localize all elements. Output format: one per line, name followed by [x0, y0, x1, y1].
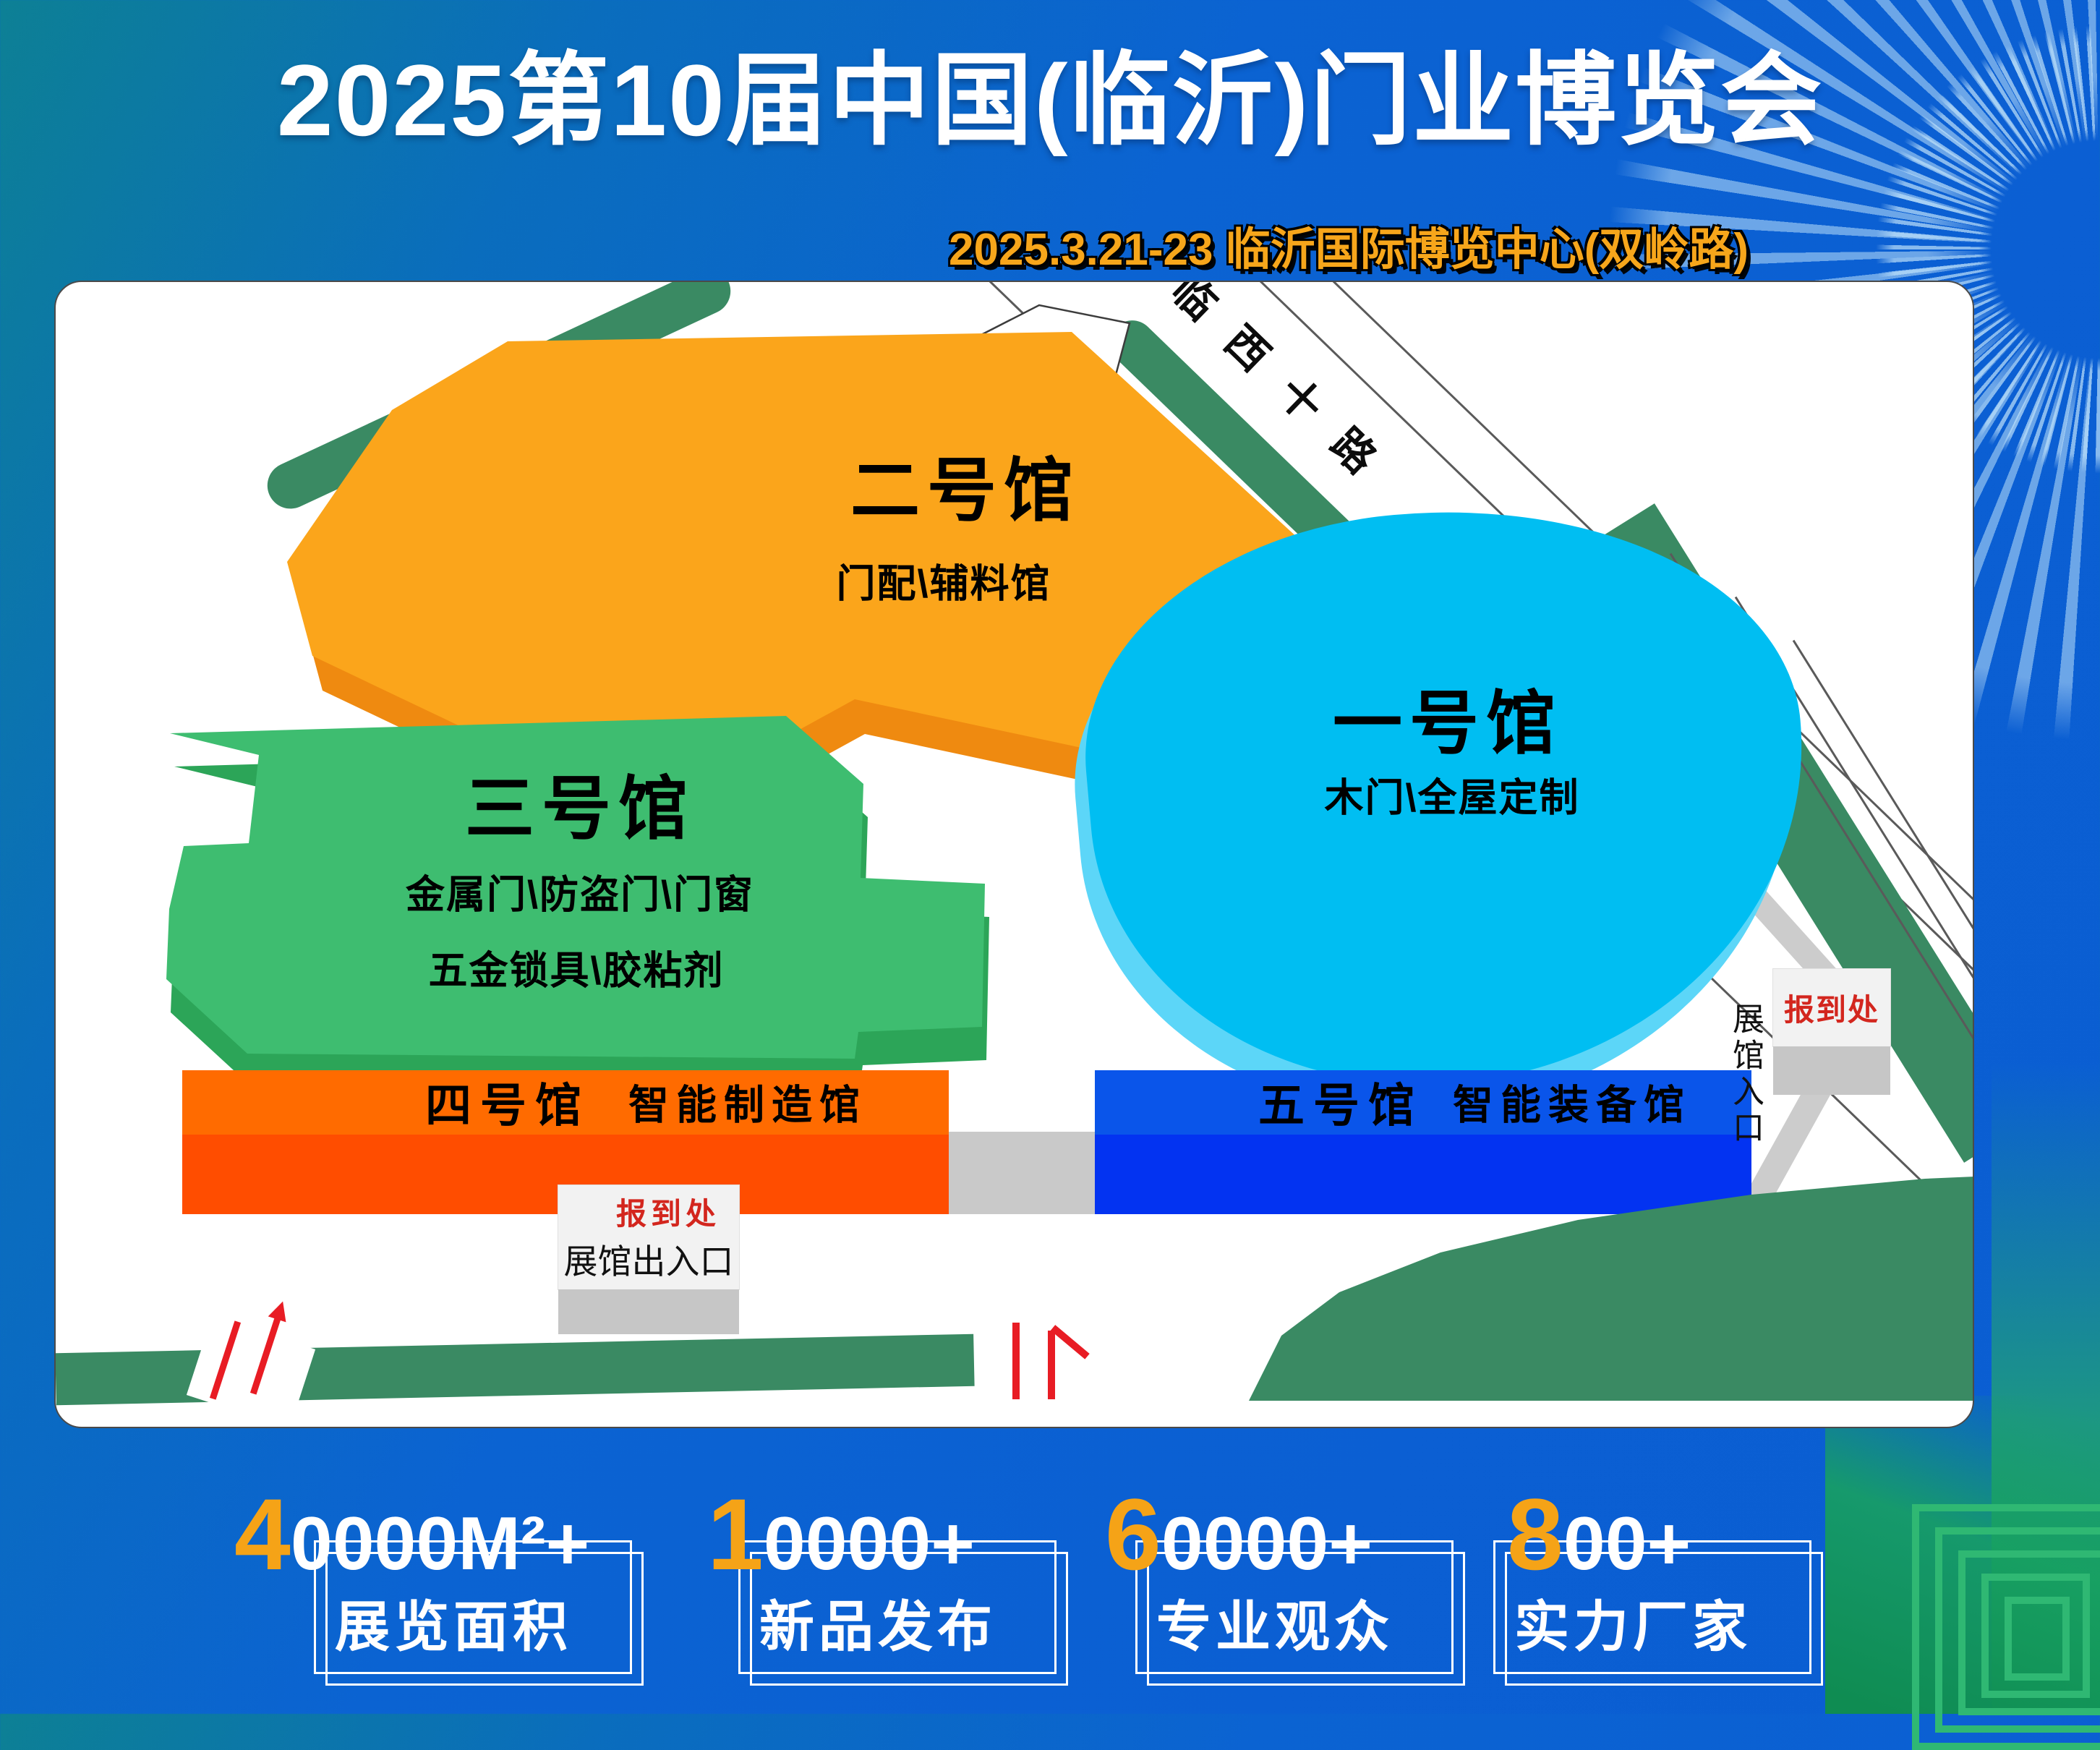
entrance-arrow-icon [1048, 1331, 1055, 1399]
page-subtitle: 2025.3.21-23 临沂国际博览中心(双岭路) [949, 213, 1749, 278]
venue-map: 临西十路 酒店 报到 [54, 281, 1974, 1428]
hall-2-desc: 门配\辅料馆 [836, 552, 1051, 609]
stat-prefix: 8 [1507, 1477, 1563, 1591]
hall-3-label: 三号馆 [465, 753, 695, 853]
stat-rest: 00+ [1563, 1502, 1691, 1586]
hall-5-label: 五号馆 [1258, 1069, 1423, 1135]
stat-visitors-label: 专业观众 [1156, 1582, 1393, 1662]
concentric-squares-decoration [2005, 1597, 2070, 1681]
hall-4-desc: 智能制造馆 [628, 1073, 867, 1132]
hall-1-label: 一号馆 [1333, 667, 1563, 768]
stat-prefix: 4 [234, 1477, 291, 1591]
hall-3-desc: 金属门\防盗门\门窗 [406, 863, 754, 920]
stat-prefix: 1 [707, 1477, 764, 1591]
hall-2-label: 二号馆 [850, 435, 1080, 535]
hall-5-desc: 智能装备馆 [1453, 1073, 1691, 1132]
registration-label: 报到处 [558, 1190, 739, 1234]
stat-exhibition-area-label: 展览面积 [335, 1582, 572, 1662]
stat-visitors-value: 60000+ [1105, 1484, 1373, 1585]
registration-box-base [1773, 1046, 1890, 1095]
hall-3-desc2: 五金锁具\胶粘剂 [428, 939, 724, 996]
stat-new-products-value: 10000+ [707, 1484, 975, 1585]
hall-5-side [1095, 1135, 1751, 1214]
entrance-gap [187, 1316, 315, 1428]
stat-rest: 0000+ [1161, 1502, 1373, 1586]
registration-box-south: 报到处 展馆出入口 [558, 1185, 739, 1334]
hall-4-label: 四号馆 [425, 1069, 590, 1135]
hall-1-desc: 木门\全屋定制 [1324, 766, 1579, 823]
entrance-arrow-icon [1012, 1323, 1020, 1399]
stat-exhibition-area-value: 40000M²+ [234, 1484, 589, 1585]
entrance-arrow-icon [1051, 1325, 1090, 1360]
stat-rest: 0000+ [764, 1502, 975, 1586]
venue-entrance-exit-label: 展馆出入口 [558, 1234, 739, 1284]
venue-entrance-label: 展馆入口 [1722, 1002, 1768, 1147]
stat-prefix: 6 [1105, 1477, 1161, 1591]
arrowhead-icon [268, 1299, 292, 1323]
registration-box-east: 报到处 [1773, 969, 1890, 1095]
stat-new-products-label: 新品发布 [759, 1582, 996, 1662]
registration-label: 报到处 [1784, 986, 1879, 1030]
stat-rest: 0000M²+ [291, 1502, 589, 1586]
stat-manufacturers-value: 800+ [1507, 1484, 1691, 1585]
page-title: 2025第10届中国(临沂)门业博览会 [277, 19, 1823, 165]
expo-poster: { "header": { "title": "2025第10届中国(临沂)门业… [0, 0, 2100, 1714]
stat-manufacturers-label: 实力厂家 [1514, 1582, 1751, 1662]
registration-box-base [558, 1289, 739, 1334]
